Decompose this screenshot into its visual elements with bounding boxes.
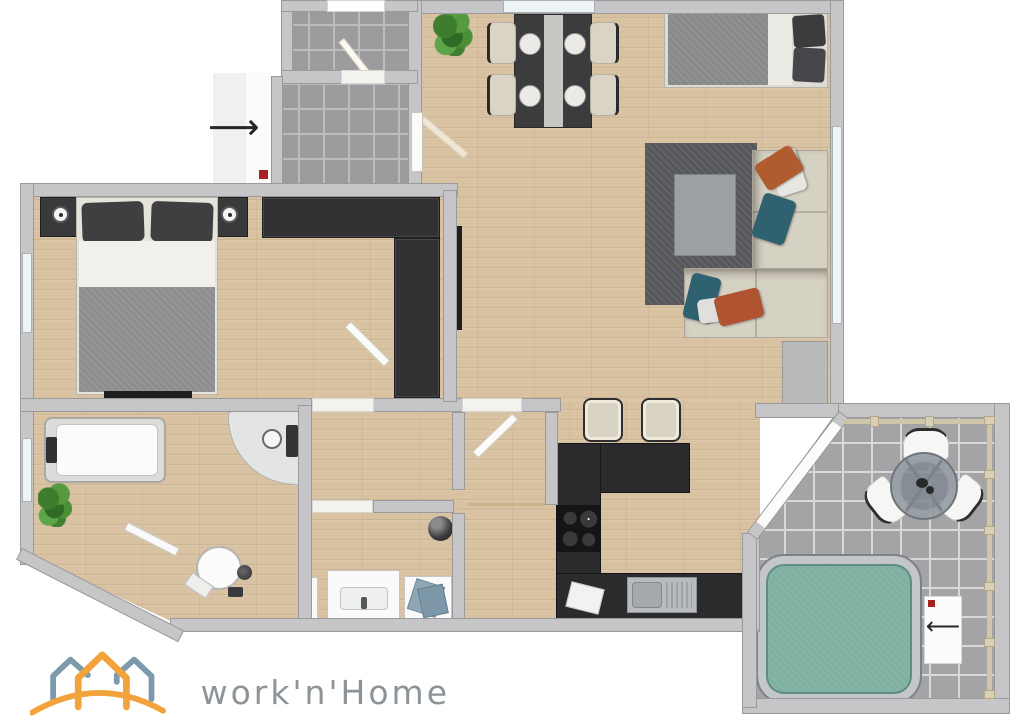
toilet-brush-icon bbox=[237, 565, 252, 580]
wall-bed-bath-divider bbox=[20, 398, 312, 412]
sideboard bbox=[782, 341, 828, 409]
toilet-paper-icon bbox=[228, 587, 243, 597]
wall-balcony-top bbox=[838, 403, 1008, 418]
bathroom-plant-icon bbox=[38, 483, 72, 527]
doorway-vanity bbox=[312, 500, 373, 513]
place-setting bbox=[519, 85, 541, 107]
daybed-pillow bbox=[792, 47, 826, 83]
stair-landing-floor bbox=[283, 8, 418, 76]
wall-corridor-kitchen bbox=[545, 412, 558, 505]
opening-vestibule-top bbox=[327, 0, 385, 12]
window-living-right bbox=[832, 126, 842, 324]
wall-bottom bbox=[170, 618, 760, 632]
bed-blanket bbox=[79, 287, 215, 392]
railing-post bbox=[984, 526, 995, 535]
daybed-sheet bbox=[768, 13, 792, 85]
wall-entry-left bbox=[271, 76, 283, 188]
brand-logo: work'n'Home bbox=[30, 638, 450, 716]
railing-post bbox=[984, 638, 995, 647]
daybed-blanket bbox=[668, 13, 768, 85]
balcony-railing-right bbox=[987, 420, 992, 700]
floor-plan: ⟵ ⟶ work bbox=[0, 0, 1024, 720]
balcony-table-center-icon bbox=[926, 486, 934, 494]
bed-pillow bbox=[150, 201, 213, 243]
dining-table bbox=[514, 14, 592, 128]
dining-chair bbox=[590, 22, 619, 64]
railing-post bbox=[984, 582, 995, 591]
opening-vestibule-bottom bbox=[341, 70, 385, 84]
wardrobe-top bbox=[262, 197, 440, 238]
wall-bathroom-right bbox=[298, 405, 312, 630]
wall-top-living bbox=[418, 0, 844, 14]
logo-houses-icon bbox=[30, 638, 175, 716]
sink-basin bbox=[632, 582, 662, 608]
hot-tub bbox=[758, 556, 920, 702]
bar-stool bbox=[583, 398, 623, 442]
entry-hall-floor bbox=[273, 80, 418, 185]
coffee-table bbox=[674, 174, 736, 256]
wall-hall-corridor-lower bbox=[452, 513, 465, 623]
railing-post bbox=[870, 416, 879, 427]
wall-bedroom-living bbox=[443, 190, 457, 402]
decor-sphere-icon bbox=[428, 516, 453, 541]
wall-lamp-left-icon bbox=[52, 206, 69, 223]
bathtub-faucet-icon bbox=[46, 437, 57, 463]
dining-chair bbox=[590, 74, 619, 116]
dining-chair bbox=[487, 22, 516, 64]
wardrobe-side bbox=[394, 238, 440, 398]
doorway-bedroom bbox=[312, 398, 374, 412]
dining-plant-icon bbox=[433, 10, 473, 56]
cooktop bbox=[557, 505, 601, 552]
bed-pillow bbox=[81, 201, 144, 243]
entry-arrow-icon: ⟶ bbox=[208, 110, 260, 146]
sink-drainer bbox=[666, 582, 692, 608]
railing-post bbox=[984, 690, 995, 699]
bathtub-basin bbox=[56, 424, 158, 476]
wall-vanity-top bbox=[373, 500, 454, 513]
apartment-door bbox=[411, 112, 423, 172]
shower-fixture-icon bbox=[286, 425, 298, 457]
logo-text: work'n'Home bbox=[201, 673, 450, 716]
place-setting bbox=[519, 33, 541, 55]
wall-divider-right bbox=[521, 398, 561, 412]
utensil-jars-icon bbox=[707, 590, 727, 606]
kitchen-threshold bbox=[467, 503, 545, 506]
entry-marker-icon bbox=[259, 170, 268, 179]
washbasin-faucet-icon bbox=[361, 597, 367, 609]
place-setting bbox=[564, 33, 586, 55]
shower-head-icon bbox=[262, 429, 282, 449]
window-dining-top bbox=[503, 0, 595, 13]
wall-balcony-bottom bbox=[742, 698, 1010, 714]
wall-bedroom-top bbox=[20, 183, 458, 197]
balcony-arrow-icon: ⟵ bbox=[925, 614, 961, 638]
bar-stool bbox=[641, 398, 681, 442]
doorway-living-corridor bbox=[462, 398, 522, 412]
dining-chair bbox=[487, 74, 516, 116]
balcony-marker-icon bbox=[928, 600, 935, 607]
wall-hall-corridor-upper bbox=[452, 412, 465, 490]
railing-post bbox=[984, 416, 995, 425]
wall-balcony-right bbox=[994, 403, 1010, 713]
daybed-pillow bbox=[792, 14, 826, 48]
wall-lamp-right-icon bbox=[221, 206, 238, 223]
balcony-railing-top bbox=[843, 419, 990, 424]
bed-sheet bbox=[79, 241, 215, 287]
wall-living-balcony bbox=[755, 403, 843, 418]
window-bedroom-left bbox=[22, 253, 32, 333]
window-bathroom-left bbox=[22, 438, 32, 502]
railing-post bbox=[925, 416, 934, 427]
railing-post bbox=[984, 470, 995, 479]
wall-balcony-left bbox=[742, 533, 757, 708]
place-setting bbox=[564, 85, 586, 107]
